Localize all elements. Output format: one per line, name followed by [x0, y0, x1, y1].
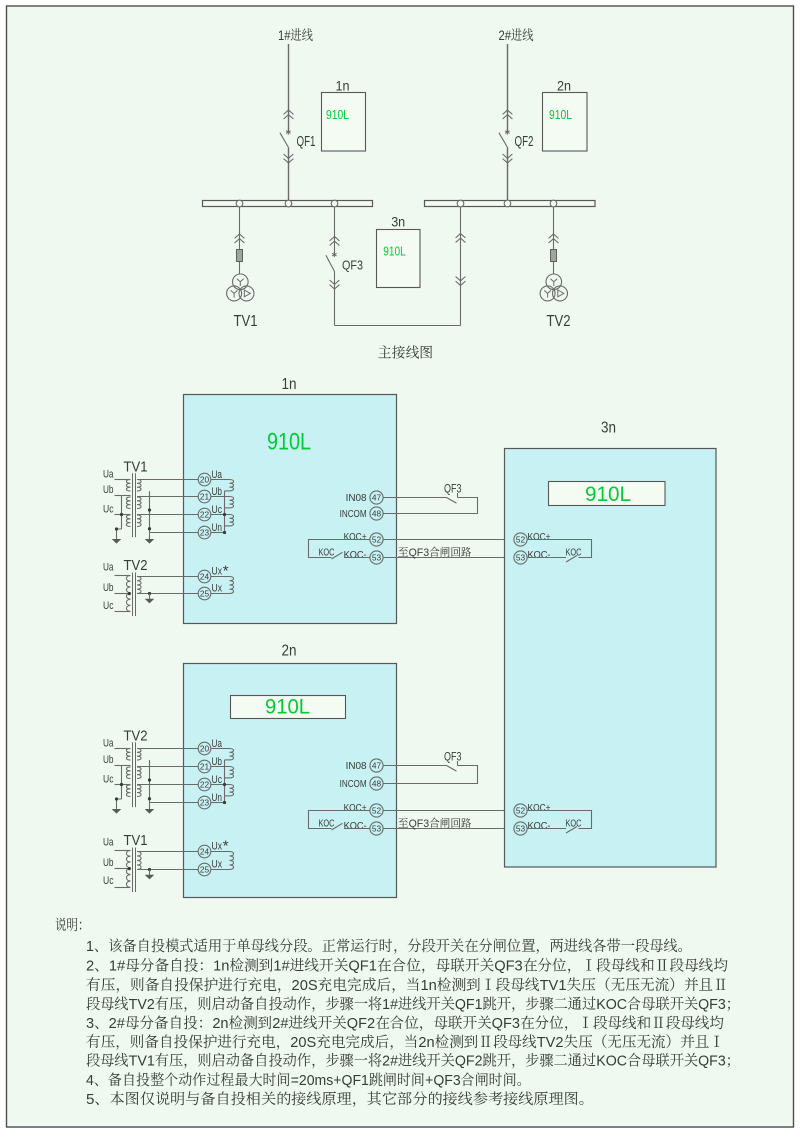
- svg-text:47: 47: [372, 761, 382, 771]
- svg-text:IN08: IN08: [346, 760, 367, 772]
- svg-text:53: 53: [372, 824, 382, 834]
- svg-text:3n: 3n: [601, 420, 616, 437]
- svg-text:TV1: TV1: [124, 833, 148, 849]
- svg-text:INCOM: INCOM: [340, 778, 367, 790]
- svg-text:3n: 3n: [391, 214, 405, 230]
- svg-text:KOC+: KOC+: [528, 802, 551, 814]
- svg-text:IN08: IN08: [346, 492, 367, 504]
- svg-text:Ub: Ub: [103, 484, 114, 496]
- svg-text:23: 23: [200, 798, 210, 808]
- svg-text:23: 23: [200, 528, 210, 538]
- svg-text:TV2: TV2: [124, 558, 148, 574]
- svg-text:4、备自投整个动作过程最大时间=20ms+QF1跳闸时间+Q: 4、备自投整个动作过程最大时间=20ms+QF1跳闸时间+QF3合闸时间。: [86, 1072, 531, 1089]
- svg-text:910L: 910L: [267, 429, 311, 456]
- svg-text:48: 48: [372, 779, 382, 789]
- svg-text:KOC+: KOC+: [344, 531, 367, 543]
- svg-text:25: 25: [200, 589, 210, 599]
- svg-text:有压，则备自投保护进行充电，20S充电完成后，当2n检测到Ⅱ: 有压，则备自投保护进行充电，20S充电完成后，当2n检测到Ⅱ段母线TV2失压（无…: [86, 1033, 724, 1051]
- svg-text:KOC-: KOC-: [528, 549, 551, 561]
- svg-text:有压，则备自投保护进行充电，20S充电完成后，当1n检测到Ⅰ: 有压，则备自投保护进行充电，20S充电完成后，当1n检测到Ⅰ段母线TV1失压（无…: [86, 976, 728, 994]
- svg-text:1n: 1n: [282, 376, 297, 393]
- svg-text:910L: 910L: [383, 244, 405, 259]
- svg-text:21: 21: [200, 492, 210, 502]
- svg-text:52: 52: [372, 535, 382, 545]
- svg-text:1、该备自投模式适用于单母线分段。正常运行时，分段开关在分闸: 1、该备自投模式适用于单母线分段。正常运行时，分段开关在分闸位置，两进线各带一段…: [86, 938, 692, 955]
- svg-text:22: 22: [200, 780, 210, 790]
- svg-text:Uc: Uc: [103, 774, 114, 786]
- svg-text:Ux: Ux: [212, 859, 223, 871]
- svg-text:KOC: KOC: [319, 547, 335, 559]
- svg-text:Ux: Ux: [212, 841, 223, 853]
- svg-text:KOC-: KOC-: [344, 820, 367, 832]
- svg-text:Uc: Uc: [103, 504, 114, 516]
- svg-text:47: 47: [372, 493, 382, 503]
- svg-text:TV2: TV2: [547, 313, 571, 330]
- svg-text:KOC-: KOC-: [528, 820, 551, 832]
- svg-text:Ua: Ua: [103, 738, 114, 750]
- svg-text:Ua: Ua: [103, 837, 114, 849]
- svg-text:Ub: Ub: [103, 582, 114, 594]
- svg-text:KOC+: KOC+: [528, 531, 551, 543]
- svg-text:Ux: Ux: [212, 566, 223, 578]
- svg-text:52: 52: [516, 806, 526, 816]
- svg-text:QF3: QF3: [444, 751, 462, 763]
- svg-text:52: 52: [372, 806, 382, 816]
- svg-text:KOC+: KOC+: [344, 802, 367, 814]
- svg-text:KOC: KOC: [319, 818, 335, 830]
- svg-text:Ua: Ua: [103, 562, 114, 574]
- svg-text:KOC-: KOC-: [344, 549, 367, 561]
- svg-text:Ub: Ub: [103, 754, 114, 766]
- svg-text:25: 25: [200, 865, 210, 875]
- svg-text:21: 21: [200, 762, 210, 772]
- svg-text:INCOM: INCOM: [340, 508, 367, 520]
- svg-text:Ub: Ub: [103, 857, 114, 869]
- svg-text:910L: 910L: [326, 107, 349, 122]
- svg-text:48: 48: [372, 509, 382, 519]
- svg-text:910L: 910L: [265, 696, 310, 719]
- svg-text:53: 53: [516, 824, 526, 834]
- svg-text:说明：: 说明：: [55, 917, 90, 934]
- svg-text:至QF3合闸回路: 至QF3合闸回路: [398, 546, 472, 559]
- svg-text:段母线TV1有压，则启动备自投动作，步骤一将2#进线开关QF: 段母线TV1有压，则启动备自投动作，步骤一将2#进线开关QF2跳开，步骤二通过K…: [86, 1052, 740, 1070]
- svg-text:TV1: TV1: [234, 313, 258, 330]
- svg-text:3、2#母分备自投：2n检测到2#进线开关QF2在合位，母联: 3、2#母分备自投：2n检测到2#进线开关QF2在合位，母联开关QF3在分位，Ⅰ…: [86, 1015, 725, 1032]
- svg-text:910L: 910L: [585, 483, 631, 506]
- svg-text:Ua: Ua: [103, 469, 114, 481]
- svg-text:5、本图仅说明与备自投相关的接线原理，其它部分的接线参考接线: 5、本图仅说明与备自投相关的接线原理，其它部分的接线参考接线原理图。: [86, 1091, 594, 1108]
- svg-text:2n: 2n: [282, 643, 297, 660]
- svg-text:20: 20: [200, 744, 210, 754]
- svg-text:Ux: Ux: [212, 583, 223, 595]
- svg-text:2、1#母分备自投：1n检测到1#进线开关QF1在合位，母联: 2、1#母分备自投：1n检测到1#进线开关QF1在合位，母联开关QF3在分位，Ⅰ…: [86, 958, 729, 975]
- svg-text:QF1: QF1: [297, 133, 316, 150]
- svg-text:1#进线: 1#进线: [278, 27, 314, 43]
- svg-text:53: 53: [372, 553, 382, 563]
- svg-text:52: 52: [516, 535, 526, 545]
- svg-text:Uc: Uc: [103, 600, 114, 612]
- svg-text:2#进线: 2#进线: [499, 27, 535, 43]
- svg-text:22: 22: [200, 510, 210, 520]
- svg-text:QF2: QF2: [515, 133, 534, 150]
- svg-text:24: 24: [200, 847, 210, 857]
- svg-text:1n: 1n: [336, 78, 350, 94]
- svg-text:段母线TV2有压，则启动备自投动作，步骤一将1#进线开关QF: 段母线TV2有压，则启动备自投动作，步骤一将1#进线开关QF1跳开，步骤二通过K…: [86, 995, 740, 1013]
- svg-text:2n: 2n: [557, 78, 571, 94]
- svg-text:QF3: QF3: [444, 483, 462, 495]
- svg-text:QF3: QF3: [342, 259, 363, 273]
- svg-text:24: 24: [200, 572, 210, 582]
- svg-text:至QF3合闸回路: 至QF3合闸回路: [398, 817, 472, 830]
- svg-text:20: 20: [200, 475, 210, 485]
- svg-text:KOC: KOC: [566, 547, 582, 559]
- svg-text:Uc: Uc: [103, 875, 114, 887]
- svg-text:53: 53: [516, 553, 526, 563]
- svg-text:910L: 910L: [549, 107, 572, 122]
- svg-text:KOC: KOC: [566, 818, 582, 830]
- svg-text:主接线图: 主接线图: [378, 345, 433, 362]
